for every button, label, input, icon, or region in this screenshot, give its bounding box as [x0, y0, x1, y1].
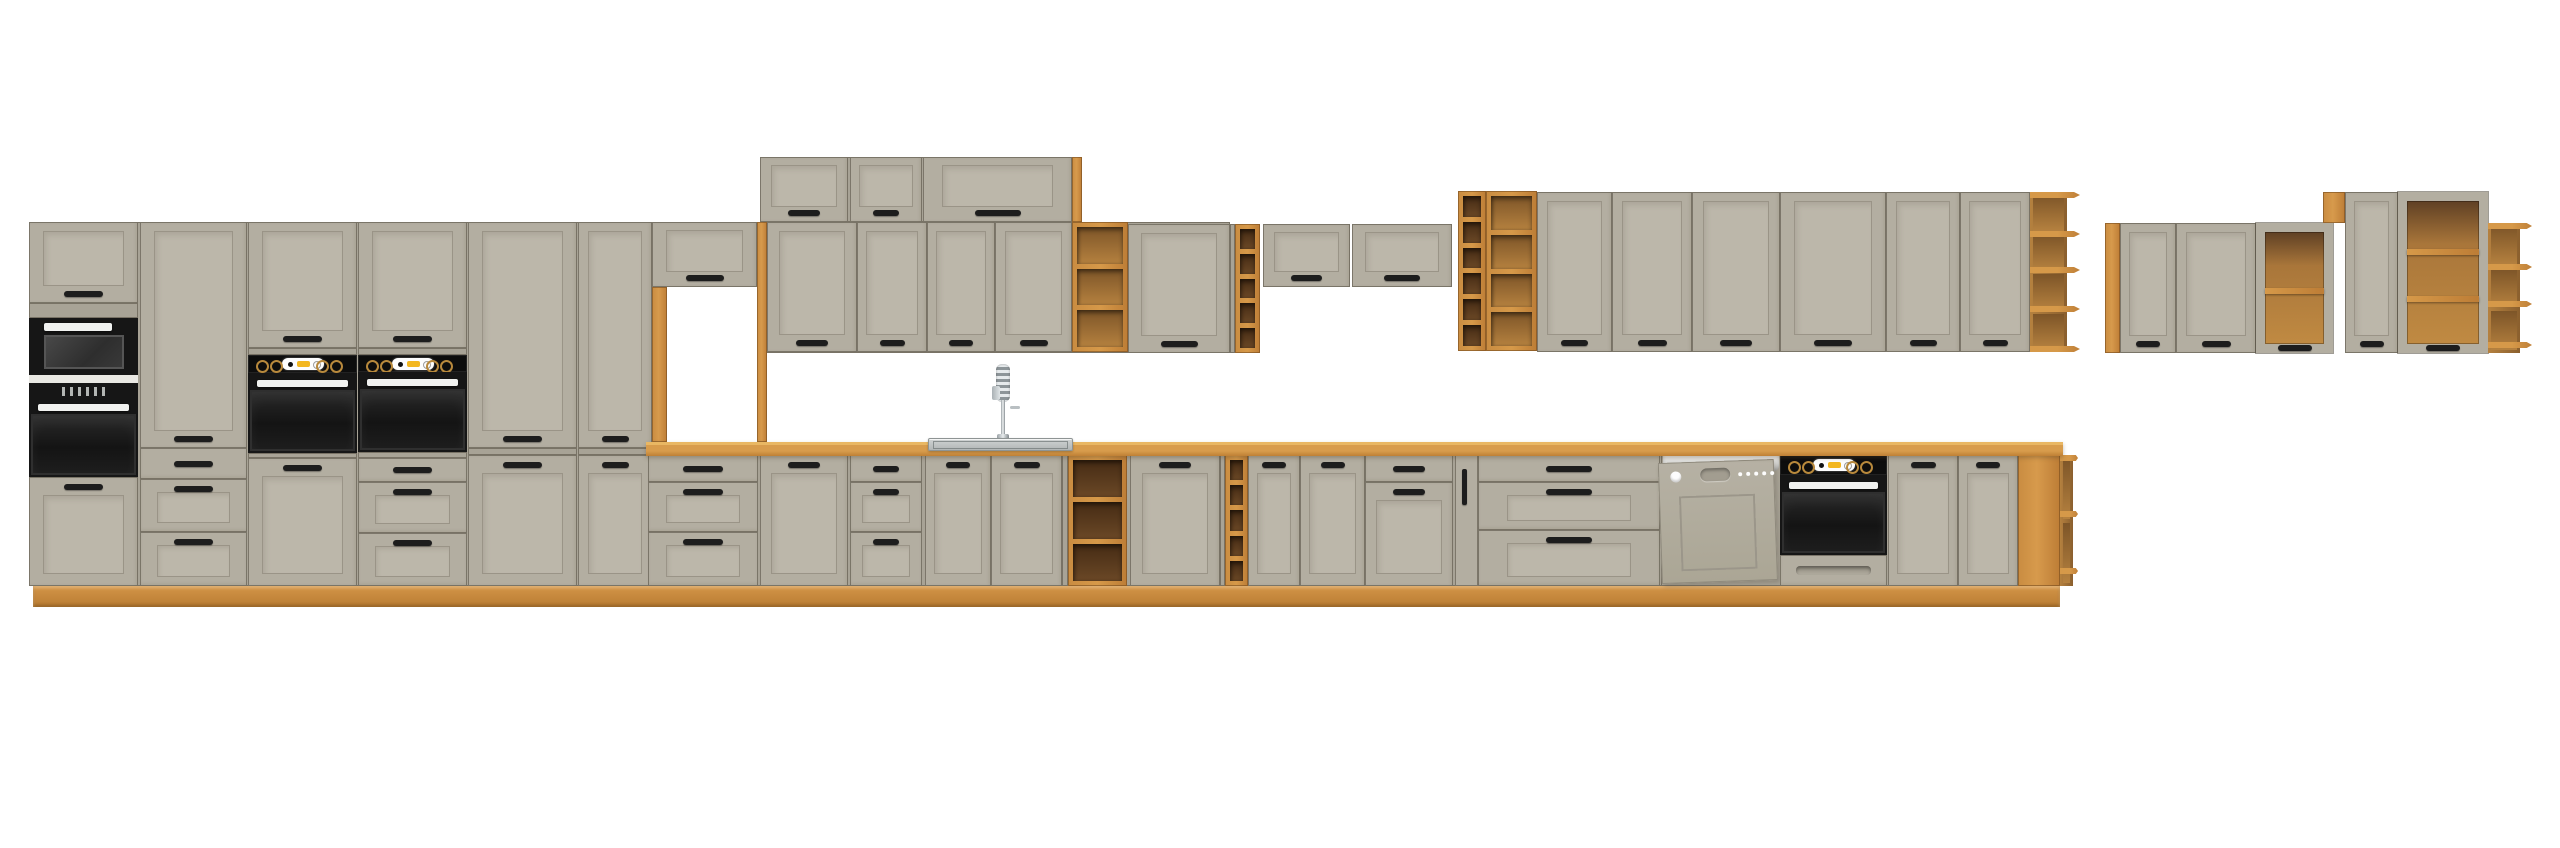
control-indicator-dot: [288, 362, 293, 367]
cabinet-handle: [1393, 466, 1425, 472]
cabinet-handle: [602, 462, 629, 468]
oven-tower1-top-door: [248, 222, 357, 348]
cabinet-handle: [1161, 341, 1198, 347]
cabinet-handle: [1720, 340, 1752, 346]
wall-shelf-col-narrow: [1458, 191, 1486, 351]
base-cab2: [1130, 455, 1220, 586]
open-shelf-compartment: [1463, 325, 1481, 346]
wall-end-shelf: [2030, 192, 2080, 352]
faucet-spout-head: [992, 386, 1000, 400]
cabinet-handle: [880, 340, 905, 346]
end-shelf-board: [2030, 306, 2080, 312]
cabinet-handle: [1384, 275, 1420, 281]
base-drawers1-d3: [648, 532, 758, 586]
cabinet-handle: [2360, 341, 2384, 347]
base-cab1: [760, 455, 848, 586]
door-panel: [1142, 473, 1208, 574]
faucet: [988, 364, 1022, 443]
door-panel: [934, 473, 982, 574]
oven-tower2-drawer2: [358, 482, 467, 533]
cabinet-handle: [1814, 340, 1852, 346]
door-panel: [942, 165, 1053, 207]
drawer-recess-grip: [1796, 566, 1871, 575]
base-oven: [1780, 475, 1887, 555]
drawer-panel: [375, 546, 450, 577]
control-knob: [316, 360, 329, 373]
open-shelf-compartment: [1230, 510, 1243, 530]
end-shelf-board: [2030, 192, 2080, 198]
tall-col5-door: [468, 222, 577, 448]
tall-col6-strip: [578, 448, 652, 455]
end-shelf-board: [2488, 301, 2532, 307]
right-group-side-panel: [2105, 223, 2120, 353]
microwave-handle-bar: [44, 323, 112, 331]
door-panel: [482, 473, 563, 574]
wall-cab5: [1128, 224, 1230, 353]
door-panel: [1257, 473, 1291, 574]
door-panel: [866, 231, 918, 335]
base-cab7: [1958, 455, 2018, 586]
wall-cab7: [1612, 192, 1692, 352]
right-oak-filler: [2323, 192, 2345, 223]
tall-col1-top-door: [29, 222, 138, 303]
end-shelf-back: [2060, 455, 2073, 586]
right-cab1: [2120, 223, 2176, 353]
right-cab2: [2176, 223, 2256, 353]
door-panel: [1274, 232, 1339, 272]
door-panel: [43, 231, 124, 286]
base-open-shelf2: [1225, 455, 1248, 586]
cabinet-handle: [949, 340, 973, 346]
base-cab5-drawer: [1365, 455, 1453, 482]
end-shelf-board: [2488, 223, 2532, 229]
door-panel: [1000, 473, 1053, 574]
tall-col5-lower-door: [468, 455, 577, 586]
cabinet-handle: [2278, 345, 2312, 351]
dishwasher-indicator-light: [1762, 471, 1766, 475]
cabinet-handle: [683, 489, 723, 495]
open-shelf-compartment: [1491, 312, 1532, 346]
open-shelf-compartment: [1230, 536, 1243, 556]
tall-col6-door: [578, 222, 652, 448]
open-shelf-compartment: [1230, 485, 1243, 505]
cabinet-handle: [1014, 462, 1040, 468]
plinth: [33, 586, 2060, 607]
tall-col5-strip: [468, 448, 577, 455]
end-shelf-board: [2488, 342, 2532, 348]
end-shelf-compartment: [2033, 235, 2064, 271]
cabinet-handle: [873, 210, 899, 216]
cabinet-handle: [1561, 340, 1588, 346]
dishwasher-indicator-light: [1738, 472, 1742, 476]
cabinet-handle: [975, 210, 1021, 216]
door-panel: [1309, 473, 1356, 574]
cabinet-handle: [1321, 462, 1345, 468]
end-shelf-compartment: [2491, 226, 2517, 265]
end-shelf-board: [2030, 231, 2080, 237]
microwave: [29, 318, 138, 375]
end-shelf-compartment: [2033, 195, 2064, 231]
pullout-vertical-handle: [1462, 469, 1467, 505]
door-panel: [1794, 201, 1872, 335]
cabinet-handle: [946, 462, 970, 468]
base-oven-control: [1780, 455, 1887, 475]
base-drawers1-d2: [648, 482, 758, 532]
cabinet-handle: [1291, 275, 1322, 281]
open-shelf-compartment: [1073, 502, 1122, 539]
open-shelf-compartment: [1230, 460, 1243, 480]
drawer-panel: [666, 545, 740, 577]
base-open-shelf1: [1068, 455, 1127, 586]
oven-column1: [29, 383, 138, 477]
wall-cab6: [1537, 192, 1612, 352]
control-knob: [1860, 461, 1873, 474]
sink-basin-rim: [933, 441, 1068, 449]
oven-door-glass: [360, 389, 465, 450]
oven-door-glass: [31, 414, 136, 475]
cabinet-handle: [1546, 489, 1592, 495]
kitchen-product-render: [0, 0, 2560, 848]
wall-cab9: [1780, 192, 1886, 352]
door-panel: [1365, 232, 1439, 272]
niche-frame-right: [757, 222, 767, 442]
base-drawers3-d3: [1478, 530, 1660, 586]
open-shelf-compartment: [1077, 227, 1123, 264]
drawer-panel: [862, 495, 910, 523]
oven-tower2-oven: [358, 372, 467, 452]
top-wall-cab2: [850, 157, 922, 222]
open-shelf-compartment: [1240, 229, 1255, 249]
door-panel: [154, 231, 233, 431]
open-shelf-compartment: [1240, 279, 1255, 299]
cabinet-handle: [1976, 462, 2000, 468]
base-oak-end-panel: [2018, 455, 2060, 586]
cabinet-handle: [503, 436, 542, 442]
cabinet-handle: [393, 540, 432, 546]
open-shelf-compartment: [1240, 303, 1255, 323]
wall-cab1: [767, 222, 857, 352]
end-shelf-board: [2060, 568, 2078, 574]
right-cab3: [2345, 192, 2398, 353]
oven-tower1-strip: [248, 348, 357, 355]
oven-tower1-control: [248, 355, 357, 373]
right-open-cab1: [2256, 223, 2333, 353]
control-knob: [1802, 461, 1815, 474]
dishwasher-door: [1658, 459, 1778, 584]
door-panel: [2354, 201, 2389, 336]
door-panel: [43, 495, 124, 574]
open-shelf-compartment: [1073, 460, 1122, 497]
cabinet-handle: [683, 539, 723, 545]
door-panel: [1967, 473, 2009, 574]
cabinet-handle: [174, 539, 213, 545]
end-shelf-board: [2030, 346, 2080, 352]
wall-open-shelf1: [1072, 222, 1128, 352]
cabinet-handle: [1910, 340, 1937, 346]
door-panel: [1703, 201, 1769, 335]
control-knob: [1846, 461, 1859, 474]
right-open-cab2: [2398, 192, 2488, 353]
dishwasher-door-frame: [1679, 494, 1758, 572]
door-panel: [1376, 500, 1442, 574]
door-panel: [779, 231, 845, 335]
oven-door-glass: [1782, 492, 1885, 553]
cabinet-handle: [393, 489, 432, 495]
end-shelf-board: [2030, 267, 2080, 273]
control-timer-lamp: [1828, 462, 1841, 468]
cabinet-handle: [1393, 489, 1425, 495]
door-panel: [2129, 232, 2167, 336]
door-panel: [262, 476, 343, 574]
oven-tower2-control: [358, 355, 467, 372]
cabinet-handle: [2136, 341, 2160, 347]
cabinet-handle: [283, 465, 322, 471]
cabinet-handle: [1020, 340, 1048, 346]
dishwasher-recessed-handle: [1700, 468, 1730, 482]
faucet-body: [1001, 400, 1005, 436]
tall-col2-drawer3: [140, 532, 247, 586]
end-shelf-back: [2488, 223, 2520, 353]
control-knob: [270, 360, 283, 373]
cabinet-handle: [683, 466, 723, 472]
cabinet-handle: [174, 436, 213, 442]
control-indicator-dot: [1819, 463, 1824, 468]
countertop: [646, 442, 2063, 456]
control-knob: [1788, 461, 1801, 474]
microwave-window: [44, 335, 124, 369]
door-panel: [2186, 232, 2246, 336]
cabinet-handle: [2202, 341, 2231, 347]
control-knob: [426, 360, 439, 373]
open-shelf-compartment: [1491, 235, 1532, 269]
open-cabinet-shelf: [2407, 249, 2479, 255]
cabinet-handle: [2426, 345, 2460, 351]
door-panel: [1897, 473, 1949, 574]
base-cab3: [1248, 455, 1300, 586]
door-panel: [859, 165, 913, 207]
base-drawers2-d1: [850, 455, 922, 482]
base-oven-drawer: [1780, 555, 1887, 586]
control-knob: [380, 360, 393, 373]
drawer-panel: [1507, 543, 1631, 577]
control-timer-lamp: [407, 361, 420, 367]
tall-col2-door: [140, 222, 247, 448]
wall-cab4: [995, 222, 1072, 352]
drawer-panel: [1507, 495, 1631, 521]
top-wall-cab1: [760, 157, 848, 222]
tall-col1-mid-panel: [29, 303, 138, 318]
cabinet-handle: [393, 336, 432, 342]
dishwasher-indicator-light: [1746, 472, 1750, 476]
oven-handle-bar: [38, 404, 130, 411]
cabinet-handle: [174, 486, 213, 492]
cabinet-handle: [1546, 537, 1592, 543]
faucet-lever: [1010, 406, 1020, 409]
door-panel: [262, 231, 343, 331]
cabinet-handle: [1262, 462, 1286, 468]
cabinet-handle: [873, 466, 899, 472]
wall-open-shelf2: [1235, 224, 1260, 353]
dishwasher-power-button: [1670, 471, 1681, 482]
base-cab5-door: [1365, 482, 1453, 586]
base-end-shelf: [2060, 455, 2078, 586]
oven-tower2-strip: [358, 348, 467, 355]
door-panel: [372, 231, 453, 331]
wall-liftup2: [1352, 224, 1452, 287]
niche-wall-cabinet: [652, 222, 757, 287]
oven-tower1-bottom-door: [248, 458, 357, 586]
cabinet-handle: [174, 461, 213, 467]
door-panel: [771, 165, 837, 207]
base-pullout: [1455, 455, 1478, 586]
oven-tower2-drawer3: [358, 533, 467, 586]
dishwasher-indicator-light: [1770, 471, 1774, 475]
door-panel: [482, 231, 563, 431]
door-panel: [1622, 201, 1682, 335]
dishwasher: [1661, 455, 1783, 586]
control-knob: [330, 360, 343, 373]
control-indicator-dot: [398, 362, 403, 367]
drawer-panel: [375, 495, 450, 524]
open-shelf-compartment: [1491, 196, 1532, 230]
wall-cab10: [1886, 192, 1960, 352]
cabinet-handle: [602, 436, 629, 442]
control-knob: [256, 360, 269, 373]
wall-shelf-col-wide: [1486, 191, 1537, 351]
open-cabinet-shelf: [2265, 288, 2324, 294]
cabinet-handle: [64, 484, 103, 490]
cabinet-handle: [64, 291, 103, 297]
open-shelf-compartment: [1491, 274, 1532, 308]
cabinet-handle: [788, 462, 820, 468]
cabinet-handle: [393, 467, 432, 473]
tall-col1-trim: [29, 375, 138, 383]
cabinet-handle: [1546, 466, 1592, 472]
end-shelf-board: [2060, 511, 2078, 517]
wall-cab8: [1692, 192, 1780, 352]
cabinet-handle: [788, 210, 820, 216]
open-shelf-compartment: [1230, 561, 1243, 581]
open-shelf-compartment: [1463, 196, 1481, 217]
base-cab4: [1300, 455, 1365, 586]
cabinet-handle: [873, 489, 899, 495]
drawer-panel: [157, 492, 230, 523]
open-shelf-compartment: [1463, 222, 1481, 243]
door-panel: [1141, 233, 1217, 336]
control-timer-lamp: [297, 361, 310, 367]
open-shelf-compartment: [1463, 248, 1481, 269]
sink-cab-left: [925, 455, 991, 586]
door-panel: [936, 231, 986, 335]
drawer-panel: [666, 495, 740, 523]
cabinet-handle: [1638, 340, 1667, 346]
cabinet-handle: [283, 336, 322, 342]
control-knob: [366, 360, 379, 373]
drawer-panel: [862, 545, 910, 577]
wall-liftup1: [1263, 224, 1350, 287]
open-shelf-compartment: [1463, 273, 1481, 294]
end-shelf-compartment: [2033, 274, 2064, 310]
top-wall-oak-end: [1072, 157, 1082, 222]
oven-display: [62, 387, 106, 396]
oven-handle-bar: [367, 379, 459, 386]
open-shelf-compartment: [1240, 328, 1255, 348]
wall-cab3: [927, 222, 995, 352]
niche-frame-left: [652, 287, 667, 442]
open-shelf-compartment: [1073, 544, 1122, 581]
end-shelf-board: [2488, 264, 2532, 270]
open-cabinet-shelf: [2407, 296, 2479, 302]
end-shelf-compartment: [2033, 314, 2064, 350]
right-corner-shelf: [2488, 223, 2532, 353]
cabinet-handle: [1159, 462, 1191, 468]
cabinet-handle: [686, 275, 724, 281]
sink-cab-right: [991, 455, 1062, 586]
wall-cab2: [857, 222, 927, 352]
top-wall-cab3: [923, 157, 1072, 222]
base-drawers3-d1: [1478, 455, 1660, 482]
door-panel: [1005, 231, 1062, 335]
wall-cab11: [1960, 192, 2030, 352]
door-panel: [588, 473, 642, 574]
tall-col2-drawer2: [140, 479, 247, 532]
oven-handle-bar: [1789, 482, 1879, 489]
door-panel: [1896, 201, 1950, 335]
cabinet-handle: [796, 340, 828, 346]
end-shelf-compartment: [2063, 458, 2070, 519]
open-shelf-compartment: [1077, 269, 1123, 306]
door-panel: [1969, 201, 2021, 335]
door-panel: [1547, 201, 1602, 335]
cabinet-handle: [1911, 462, 1936, 468]
oven-tower2-top-door: [358, 222, 467, 348]
door-panel: [771, 473, 837, 574]
oven-door-glass: [250, 390, 355, 451]
drawer-panel: [157, 545, 230, 577]
control-knob: [440, 360, 453, 373]
cabinet-handle: [873, 539, 899, 545]
sink: [928, 438, 1073, 451]
base-cab6: [1888, 455, 1958, 586]
door-panel: [588, 231, 642, 431]
cabinet-handle: [503, 462, 542, 468]
dishwasher-indicator-light: [1754, 472, 1758, 476]
open-shelf-compartment: [1240, 254, 1255, 274]
tall-col1-bottom-door: [29, 477, 138, 586]
tall-col6-lower-door: [578, 455, 652, 586]
door-panel: [666, 230, 743, 272]
base-drawers2-d2: [850, 482, 922, 532]
base-drawers3-d2: [1478, 482, 1660, 530]
base-drawers2-d3: [850, 532, 922, 586]
cabinet-handle: [1983, 340, 2008, 346]
open-shelf-compartment: [1463, 299, 1481, 320]
oven-tower2-drawer1: [358, 458, 467, 482]
oven-tower1-oven: [248, 373, 357, 453]
base-drawers1-d1: [648, 455, 758, 482]
oven-handle-bar: [257, 380, 349, 387]
tall-col2-drawer1: [140, 448, 247, 479]
open-shelf-compartment: [1077, 310, 1123, 347]
